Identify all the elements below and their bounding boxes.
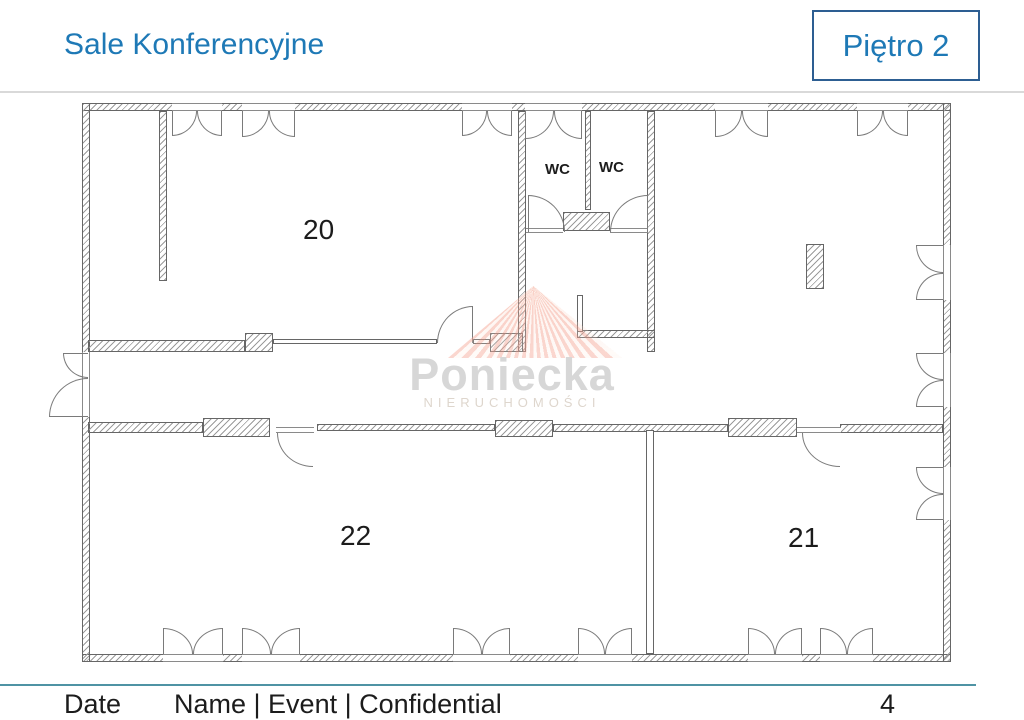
door-leaf-icon — [916, 467, 943, 494]
wc-right-door — [610, 195, 648, 232]
wall-corridor-lower-3 — [553, 424, 728, 432]
double-door-bottom-1 — [163, 628, 223, 654]
room-label-22: 22 — [340, 520, 371, 552]
footer-date: Date — [64, 689, 121, 720]
door-leaf-icon — [820, 628, 847, 654]
opening-right-2 — [943, 353, 951, 407]
door-leaf-icon — [242, 111, 269, 137]
wall-wc-right — [647, 111, 655, 352]
door-leaf-icon — [525, 111, 554, 139]
double-door-bottom-5 — [748, 628, 802, 654]
double-door-bottom-3 — [453, 628, 510, 654]
door-leaf-icon — [916, 494, 943, 521]
room-label-21: 21 — [788, 522, 819, 554]
door-leaf-icon — [847, 628, 874, 654]
door-leaf-icon — [269, 111, 296, 137]
wall-corridor-lower-block-3 — [728, 418, 797, 437]
wc-sink-block — [563, 212, 610, 231]
door-leaf-icon — [482, 628, 511, 654]
wc-right-label: WC — [599, 159, 624, 176]
opening-bottom-2 — [242, 654, 300, 662]
wall-corridor-lower-2 — [317, 424, 495, 431]
brand-fan-icon — [448, 286, 622, 358]
pillar — [806, 244, 824, 289]
opening-top-3 — [462, 103, 512, 111]
opening-top-5 — [715, 103, 768, 111]
floor-plan: 20 22 21 WC WC Poniecka NIERUCHOMOŚCI — [0, 0, 1024, 709]
door-leaf-icon — [578, 628, 605, 654]
door-leaf-icon — [172, 111, 197, 136]
door-leaf-icon — [605, 628, 632, 654]
door-leaf-icon — [916, 273, 943, 301]
double-door-right-3 — [916, 467, 943, 520]
wall-room20-inner — [159, 111, 167, 281]
double-door-top-5 — [857, 111, 908, 136]
wall-wc-divider — [585, 111, 591, 210]
door-leaf-icon — [271, 628, 300, 654]
exit-door-lower-leaf — [49, 378, 88, 417]
opening-top-6 — [857, 103, 908, 111]
door-leaf-icon — [916, 245, 943, 273]
wall-corridor-lower-block-1 — [203, 418, 270, 437]
opening-top-4 — [525, 103, 582, 111]
door-leaf-icon — [193, 628, 223, 654]
double-door-bottom-2 — [242, 628, 300, 654]
door-leaf-icon — [453, 628, 482, 654]
watermark-subtitle: NIERUCHOMOŚCI — [424, 395, 601, 410]
double-door-top-3 — [462, 111, 512, 136]
wall-corridor-upper-thin-1 — [273, 339, 437, 344]
wall-corridor-lower-4 — [840, 424, 943, 433]
exit-door-upper-leaf — [63, 353, 88, 378]
door-leaf-icon — [462, 111, 487, 136]
wall-divider-21-22 — [646, 430, 654, 654]
door-leaf-icon — [242, 628, 271, 654]
door-leaf-icon — [487, 111, 512, 136]
footer-rule — [0, 684, 976, 686]
double-door-bottom-6 — [820, 628, 873, 654]
door-leaf-icon — [883, 111, 909, 136]
double-door-right-1 — [916, 245, 943, 300]
door-leaf-icon — [748, 628, 775, 654]
double-door-top-2 — [242, 111, 295, 137]
double-door-top-1 — [172, 111, 222, 136]
room22-door — [277, 433, 313, 467]
footer-meta: Name | Event | Confidential — [174, 689, 502, 720]
wall-corridor-lower-1 — [88, 422, 203, 433]
opening-bottom-3 — [453, 654, 510, 662]
door-leaf-icon — [163, 628, 193, 654]
opening-right-1 — [943, 245, 951, 300]
double-door-top-4 — [715, 111, 768, 137]
door-leaf-icon — [916, 353, 943, 380]
opening-bottom-6 — [820, 654, 873, 662]
watermark-brand: Poniecka — [409, 349, 615, 401]
wall-corridor-upper-block-1 — [245, 333, 273, 352]
double-door-right-2 — [916, 353, 943, 407]
opening-bottom-5 — [748, 654, 802, 662]
door-leaf-icon — [857, 111, 883, 136]
opening-top-1 — [172, 103, 222, 111]
footer-page-number: 4 — [880, 689, 895, 720]
door-leaf-icon — [197, 111, 222, 136]
opening-top-2 — [242, 103, 295, 111]
room-label-20: 20 — [303, 214, 334, 246]
opening-bottom-1 — [163, 654, 223, 662]
wc-left-label: WC — [545, 161, 570, 178]
room21-door — [802, 433, 840, 467]
wc-left-door — [528, 195, 565, 232]
double-door-bottom-4 — [578, 628, 632, 654]
wall-corridor-upper-1 — [88, 340, 245, 352]
room20-corridor-door — [437, 306, 473, 343]
double-door-wc — [525, 111, 582, 139]
opening-right-3 — [943, 467, 951, 520]
wall-corridor-lower-block-2 — [495, 420, 553, 437]
door-leaf-icon — [742, 111, 769, 137]
door-leaf-icon — [554, 111, 583, 139]
door-leaf-icon — [775, 628, 802, 654]
door-leaf-icon — [715, 111, 742, 137]
door-leaf-icon — [916, 380, 943, 407]
opening-bottom-4 — [578, 654, 632, 662]
